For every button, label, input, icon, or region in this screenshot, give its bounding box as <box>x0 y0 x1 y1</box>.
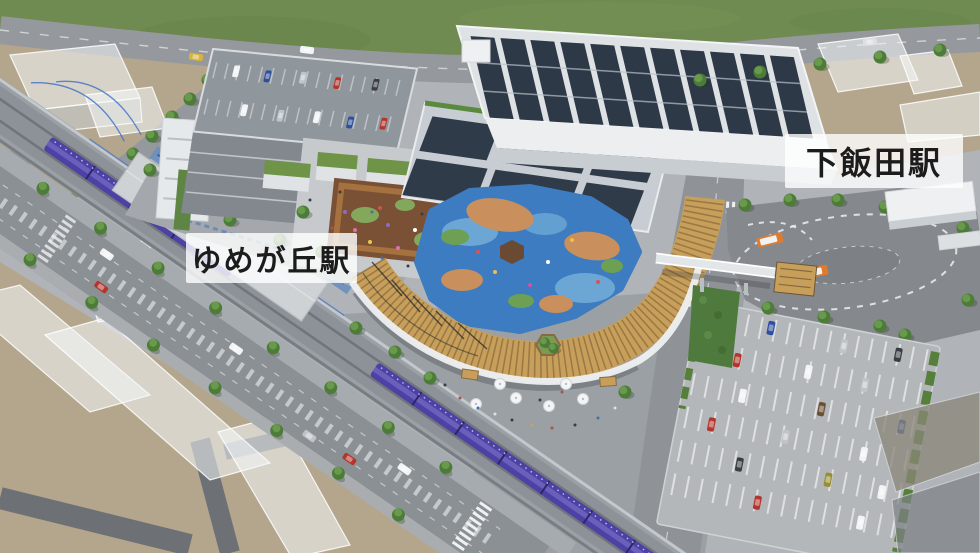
hedge-bank <box>688 285 740 368</box>
site-plan-illustration <box>0 0 980 553</box>
station-label-shimoiida: 下飯田駅 <box>785 134 963 188</box>
aerial-rendering: ゆめが丘駅 下飯田駅 <box>0 0 980 553</box>
kiosk <box>461 369 478 380</box>
bridge-landing-canopy <box>774 262 817 296</box>
main-building <box>457 26 838 185</box>
station-label-yumegaoka: ゆめが丘駅 <box>186 233 357 283</box>
kiosk <box>600 376 617 386</box>
